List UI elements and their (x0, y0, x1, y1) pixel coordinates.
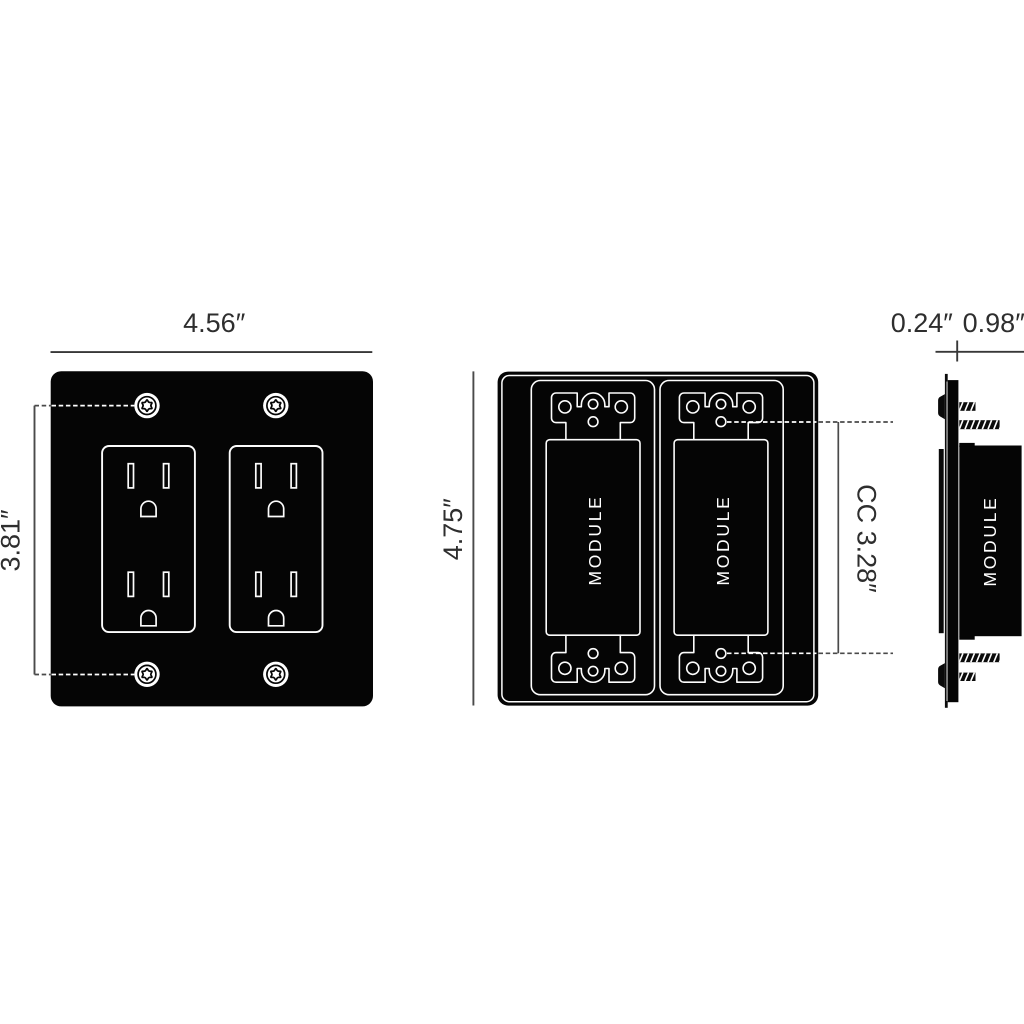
svg-text:4.75″: 4.75″ (438, 498, 468, 561)
svg-text:0.98″: 0.98″ (963, 308, 1024, 338)
svg-text:MODULE: MODULE (585, 494, 605, 585)
svg-text:0.24″: 0.24″ (891, 308, 954, 338)
svg-text:CC 3.28″: CC 3.28″ (852, 484, 882, 593)
svg-text:3.81″: 3.81″ (0, 509, 26, 572)
svg-text:MODULE: MODULE (980, 495, 1000, 586)
svg-text:4.56″: 4.56″ (183, 308, 246, 338)
svg-text:MODULE: MODULE (713, 494, 733, 585)
